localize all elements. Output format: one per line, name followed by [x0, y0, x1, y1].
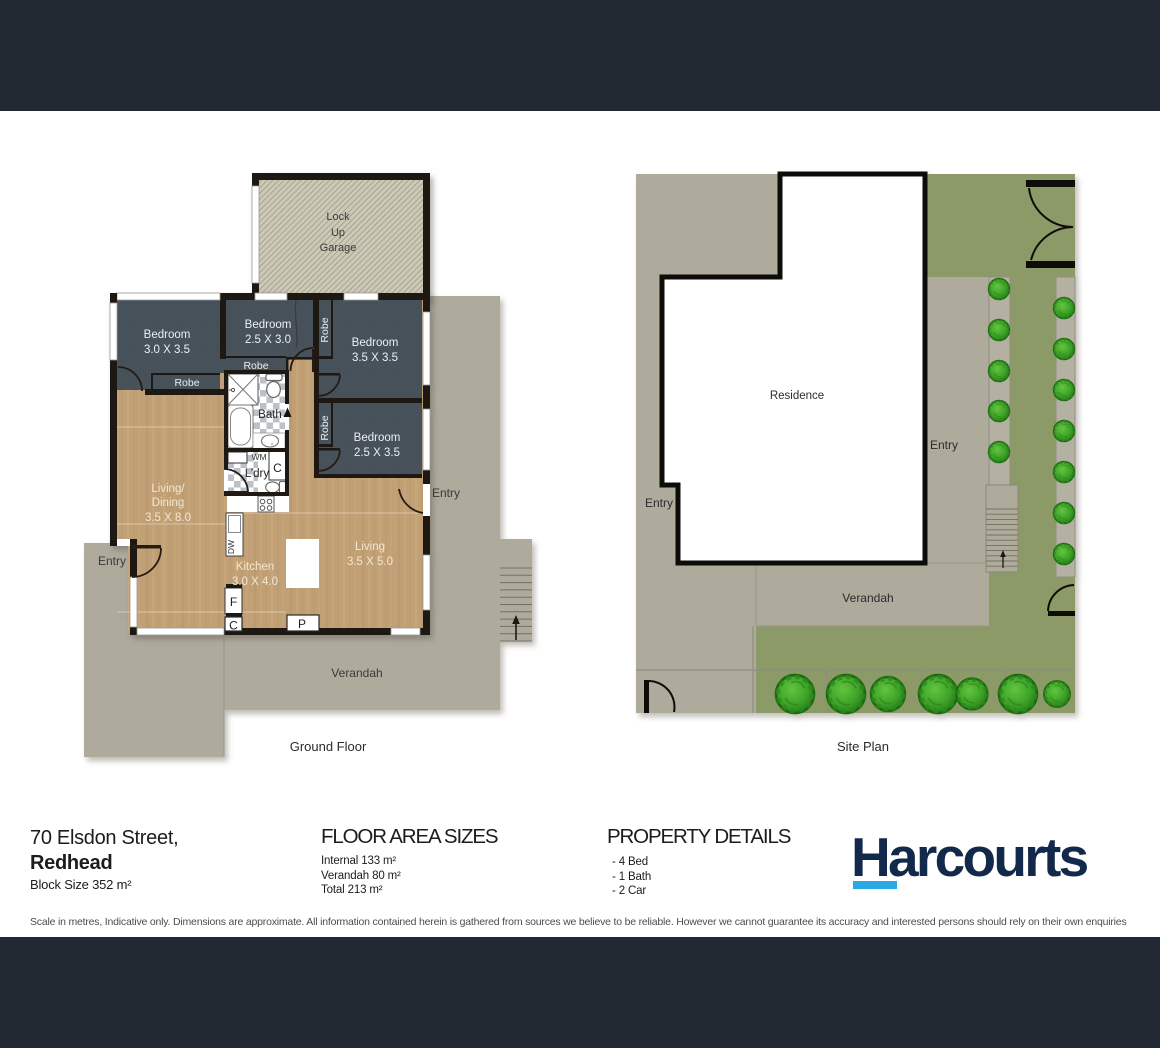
- svg-text:Robe: Robe: [319, 317, 331, 342]
- svg-text:3.5 X 5.0: 3.5 X 5.0: [347, 556, 393, 568]
- svg-text:Bedroom: Bedroom: [354, 432, 401, 444]
- svg-text:DW: DW: [226, 540, 236, 554]
- svg-text:Verandah: Verandah: [331, 666, 382, 680]
- svg-text:2.5 X 3.0: 2.5 X 3.0: [245, 334, 291, 346]
- svg-text:Entry: Entry: [645, 496, 673, 510]
- svg-text:3.5 X 3.5: 3.5 X 3.5: [352, 352, 398, 364]
- svg-text:L’dry: L’dry: [245, 468, 270, 480]
- svg-text:Robe: Robe: [243, 360, 268, 372]
- svg-text:Site Plan: Site Plan: [837, 739, 889, 754]
- svg-text:Robe: Robe: [319, 415, 331, 440]
- svg-text:Up: Up: [331, 227, 345, 239]
- svg-text:3.0 X 3.5: 3.0 X 3.5: [144, 344, 190, 356]
- svg-text:C: C: [229, 619, 238, 633]
- svg-text:C: C: [273, 461, 282, 475]
- svg-text:Bedroom: Bedroom: [352, 337, 399, 349]
- svg-text:Lock: Lock: [326, 211, 350, 223]
- svg-text:Robe: Robe: [174, 377, 199, 389]
- svg-text:Entry: Entry: [930, 438, 958, 452]
- svg-text:Entry: Entry: [432, 486, 460, 500]
- svg-text:Bath: Bath: [258, 409, 282, 421]
- svg-text:Living/: Living/: [151, 483, 185, 495]
- svg-text:Bedroom: Bedroom: [245, 319, 292, 331]
- svg-text:P: P: [298, 617, 306, 631]
- svg-text:Residence: Residence: [770, 390, 824, 402]
- svg-text:2.5 X 3.5: 2.5 X 3.5: [354, 447, 400, 459]
- svg-text:Living: Living: [355, 541, 385, 553]
- svg-text:Dining: Dining: [152, 497, 185, 509]
- svg-text:3.5 X 8.0: 3.5 X 8.0: [145, 512, 191, 524]
- svg-text:Bedroom: Bedroom: [144, 329, 191, 341]
- svg-text:WM: WM: [251, 452, 266, 462]
- svg-text:F: F: [230, 595, 237, 609]
- svg-text:3.0 X 4.0: 3.0 X 4.0: [232, 576, 278, 588]
- svg-text:Entry: Entry: [98, 554, 126, 568]
- svg-text:Verandah: Verandah: [842, 591, 893, 605]
- svg-text:Garage: Garage: [320, 242, 357, 254]
- svg-text:Ground Floor: Ground Floor: [290, 739, 367, 754]
- svg-text:Kitchen: Kitchen: [236, 561, 274, 573]
